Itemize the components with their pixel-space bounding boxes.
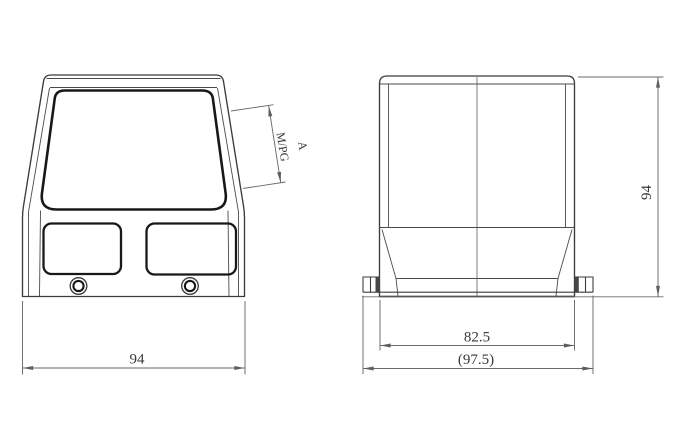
front-lower-wall-left — [40, 211, 41, 297]
front-screw-left-inner — [73, 281, 83, 291]
dim-front-width: 94 — [23, 301, 246, 375]
dim-cable-entry: M/PG A — [231, 105, 310, 189]
dim-extension-line — [231, 105, 274, 111]
front-recess-left — [44, 224, 122, 275]
dim-text-base-width: 82.5 — [464, 330, 490, 346]
front-view — [23, 75, 245, 297]
side-view — [363, 76, 593, 297]
front-opening — [42, 91, 226, 210]
dim-text-thread-size: A — [295, 140, 310, 151]
dim-base-width: 82.5 — [380, 300, 575, 351]
drawing-canvas: 94 M/PG A 94 — [0, 0, 680, 440]
dim-text-side-height: 94 — [639, 185, 655, 201]
front-recess-right — [147, 224, 237, 275]
front-inner-wall-left — [29, 88, 50, 297]
peg-root-right — [575, 277, 579, 292]
side-collar-slant-left — [382, 230, 398, 297]
front-screw-right-inner — [185, 281, 195, 291]
dim-text-overall-width: (97.5) — [458, 352, 494, 368]
front-outer-outline — [23, 75, 245, 297]
side-collar-slant-right — [556, 230, 572, 297]
dim-side-height: 94 — [362, 77, 664, 297]
peg-root-left — [376, 277, 380, 292]
dim-text-front-width: 94 — [130, 352, 146, 368]
dim-extension-line — [243, 182, 286, 189]
dim-text-thread: M/PG — [274, 131, 292, 163]
technical-drawing: 94 M/PG A 94 — [0, 0, 680, 440]
